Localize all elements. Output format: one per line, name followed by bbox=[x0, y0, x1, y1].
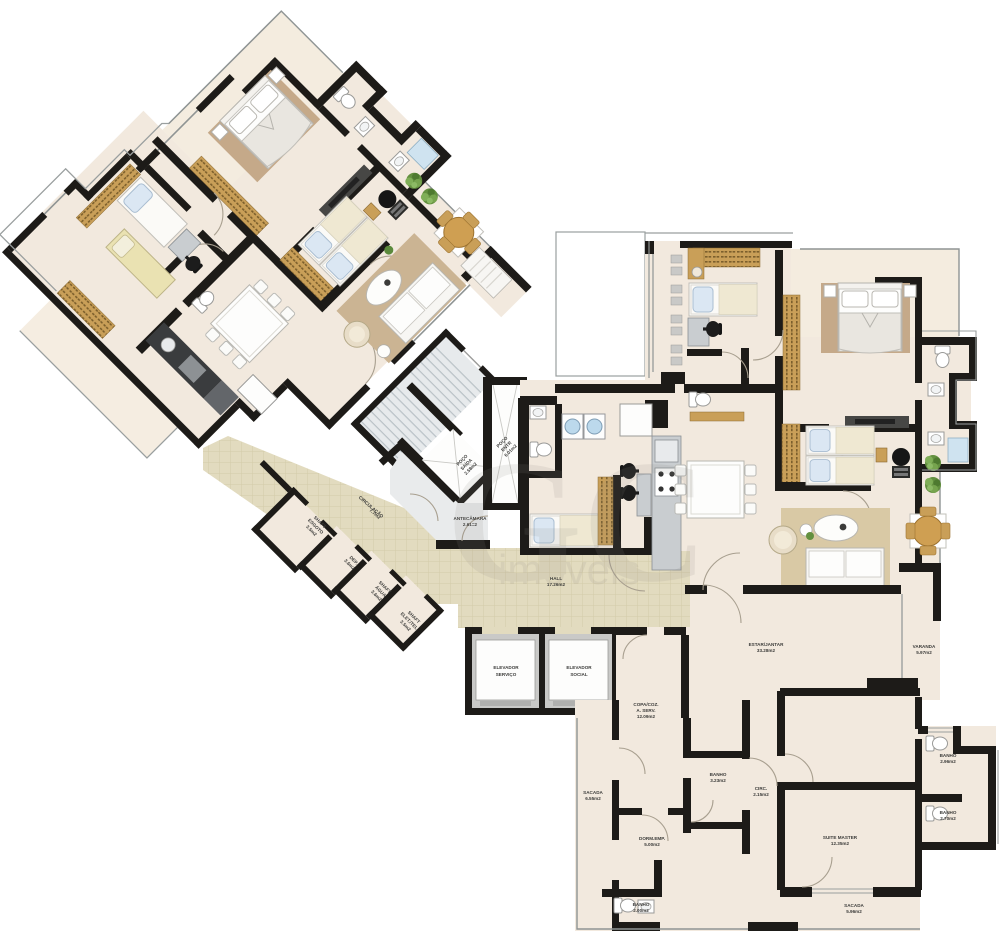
svg-text:BANHO: BANHO bbox=[633, 902, 650, 907]
svg-text:2.70m2: 2.70m2 bbox=[940, 816, 956, 821]
svg-text:VARANDA: VARANDA bbox=[913, 644, 936, 649]
svg-text:33.28m2: 33.28m2 bbox=[757, 648, 776, 653]
svg-text:BANHO: BANHO bbox=[940, 753, 957, 758]
svg-text:12.35m2: 12.35m2 bbox=[831, 841, 850, 846]
svg-text:SUITE MASTER: SUITE MASTER bbox=[823, 835, 858, 840]
svg-text:2.15m2: 2.15m2 bbox=[753, 792, 769, 797]
svg-text:SACADA: SACADA bbox=[583, 790, 603, 795]
svg-text:5.96m2: 5.96m2 bbox=[846, 909, 862, 914]
svg-text:imóveis: imóveis bbox=[498, 546, 640, 593]
svg-text:SERVIÇO: SERVIÇO bbox=[496, 672, 517, 677]
svg-text:SACADA: SACADA bbox=[844, 903, 864, 908]
svg-text:BANHO: BANHO bbox=[940, 810, 957, 815]
svg-text:5.97m2: 5.97m2 bbox=[916, 650, 932, 655]
svg-text:BANHO: BANHO bbox=[710, 772, 727, 777]
svg-text:3.23m2: 3.23m2 bbox=[710, 778, 726, 783]
svg-text:5.00m2: 5.00m2 bbox=[644, 842, 660, 847]
svg-text:12.09m2: 12.09m2 bbox=[637, 714, 656, 719]
svg-text:2.00m2: 2.00m2 bbox=[633, 908, 649, 913]
svg-text:ESTAR/JANTAR: ESTAR/JANTAR bbox=[749, 642, 784, 647]
svg-text:2.96m2: 2.96m2 bbox=[940, 759, 956, 764]
svg-text:SOCIAL: SOCIAL bbox=[570, 672, 588, 677]
svg-text:ELEVADOR: ELEVADOR bbox=[566, 665, 592, 670]
svg-text:COPA/COZ.: COPA/COZ. bbox=[633, 702, 658, 707]
svg-text:A. SERV.: A. SERV. bbox=[636, 708, 655, 713]
svg-text:6.55m2: 6.55m2 bbox=[585, 796, 601, 801]
svg-text:DORM.EMP.: DORM.EMP. bbox=[639, 836, 665, 841]
svg-text:CIRC.: CIRC. bbox=[755, 786, 768, 791]
svg-text:ELEVADOR: ELEVADOR bbox=[493, 665, 519, 670]
